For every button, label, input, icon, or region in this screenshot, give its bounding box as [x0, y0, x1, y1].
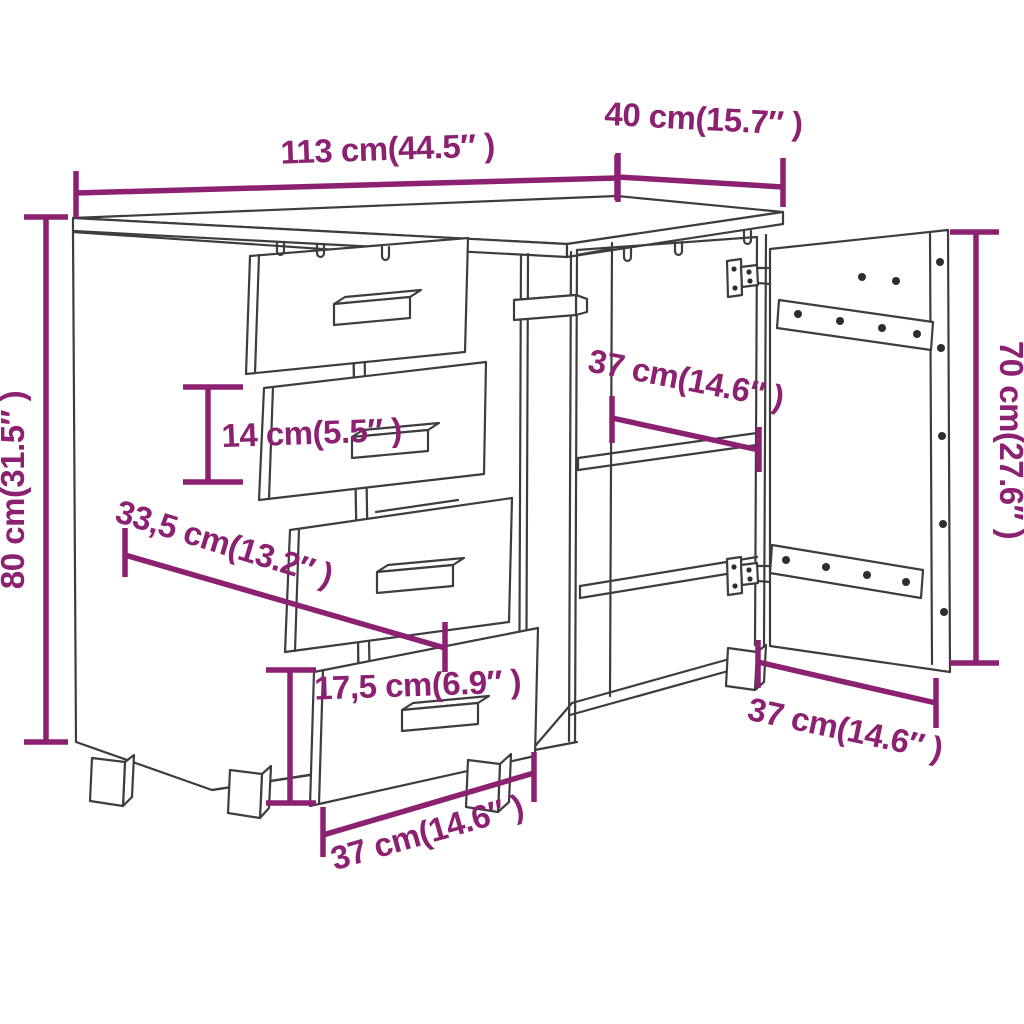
dimension-diagram: 113 cm(44.5″ ) 40 cm(15.7″ ) 80 cm(31.5″…	[0, 0, 1024, 1024]
dim-large-drawer-height-label: 17,5 cm(6.9″ )	[314, 662, 522, 706]
dim-total-height-label: 80 cm(31.5″ )	[0, 391, 31, 589]
dim-door-height-label: 70 cm(27.6″ )	[993, 341, 1024, 539]
door-hinge-top	[727, 259, 770, 297]
drawer-1	[246, 238, 468, 374]
dim-door-height: 70 cm(27.6″ )	[950, 232, 1024, 663]
dim-small-drawer-height-label: 14 cm(5.5″ )	[221, 411, 403, 454]
dim-door-width-label: 37 cm(14.6″ )	[745, 690, 947, 767]
dim-top-width-label: 113 cm(44.5″ )	[280, 126, 495, 170]
dim-top-depth-label: 40 cm(15.7″ )	[604, 95, 804, 142]
foot-front-left	[228, 766, 271, 818]
dim-top-depth: 40 cm(15.7″ )	[604, 95, 804, 207]
dim-total-height: 80 cm(31.5″ )	[0, 217, 68, 742]
sideboard-line-art: 113 cm(44.5″ ) 40 cm(15.7″ ) 80 cm(31.5″…	[0, 0, 1024, 1024]
foot-back-left	[90, 755, 134, 806]
dim-drawer-width-label: 37 cm(14.6″ )	[326, 787, 527, 877]
